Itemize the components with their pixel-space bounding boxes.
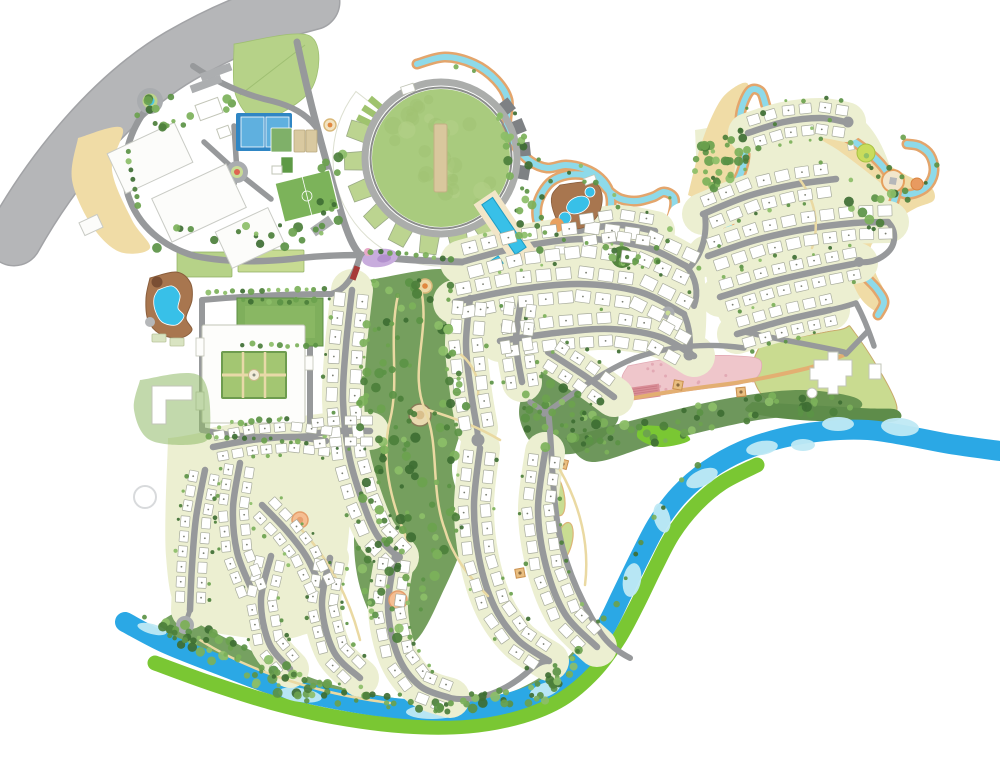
lakeside-building bbox=[134, 373, 211, 445]
master-plan-map bbox=[0, 0, 1000, 758]
pond-outline bbox=[134, 486, 156, 508]
clubhouse-formal-garden bbox=[196, 298, 323, 423]
master-plan-canvas bbox=[0, 0, 1000, 758]
leisure-pool-garden bbox=[145, 272, 192, 346]
